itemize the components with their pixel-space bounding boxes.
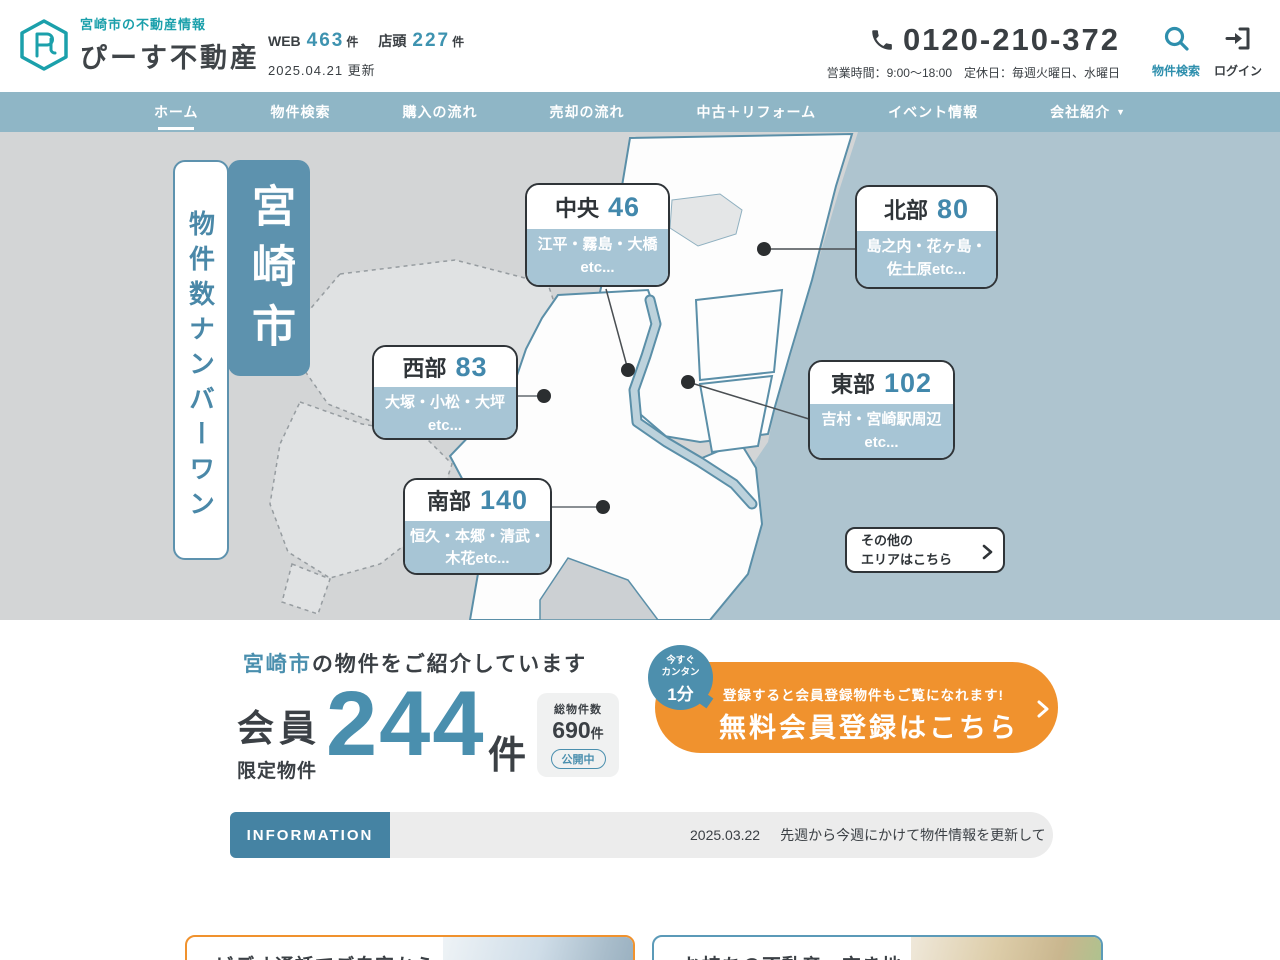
login-button[interactable]: ログイン [1206, 25, 1270, 79]
map-dot-west [537, 389, 551, 403]
business-hours: 営業時間：9:00〜18:00 定休日：毎週火曜日、水曜日 [827, 64, 1120, 81]
members-count-unit: 件 [488, 724, 526, 779]
web-count-label: WEB [268, 33, 301, 49]
information-label: INFORMATION [230, 812, 390, 858]
news-date: 2025.03.22 [690, 827, 760, 843]
brand-name: ぴーす不動産 [80, 36, 260, 75]
area-card-tobu[interactable]: 東部102 吉村・宮崎駅周辺etc... [808, 360, 955, 460]
nav-item-company[interactable]: 会社紹介▼ [1050, 92, 1126, 132]
property-search-button[interactable]: 物件検索 [1144, 25, 1208, 79]
map-dot-east [681, 375, 695, 389]
area-card-nanbu[interactable]: 南部140 恒久・本郷・清武・木花etc... [403, 478, 552, 575]
store-count-value: 227 [412, 30, 450, 52]
video-consultation-card[interactable]: ビデオ通話でご自宅から相談 [185, 935, 635, 960]
map-dot-central [621, 363, 635, 377]
nav-item-buying-flow[interactable]: 購入の流れ [403, 92, 478, 132]
total-listings-box: 総物件数 690件 公開中 [537, 693, 619, 777]
nav-item-used-reform[interactable]: 中古＋リフォーム [697, 92, 817, 132]
phone-number[interactable]: 0120-210-372 [903, 22, 1120, 58]
property-sell-card[interactable]: お持ちの不動産、空き地を [652, 935, 1103, 960]
area-card-chuo[interactable]: 中央46 江平・霧島・大橋etc... [525, 183, 670, 287]
members-only-label: 会員 限定物件 [237, 698, 321, 783]
contact-block: 0120-210-372 営業時間：9:00〜18:00 定休日：毎週火曜日、水… [827, 22, 1120, 81]
one-minute-badge: 今すぐ カンタン 1分 [648, 645, 713, 710]
vertical-banner-main: 宮崎市 [228, 160, 310, 376]
chevron-right-icon [981, 544, 993, 560]
brand-logo-icon [18, 19, 70, 71]
cta-main-text: 無料会員登録はこちら [719, 706, 1019, 745]
main-nav: ホーム 物件検索 購入の流れ 売却の流れ 中古＋リフォーム イベント情報 会社紹… [0, 92, 1280, 132]
header: 宮崎市の不動産情報 ぴーす不動産 WEB 463 件 店頭 227 件 2025… [0, 0, 1280, 92]
map-dot-south [596, 500, 610, 514]
map-area-east-upper [696, 290, 782, 380]
other-areas-button[interactable]: その他のエリアはこちら [845, 527, 1005, 573]
dropdown-caret-icon: ▼ [1116, 107, 1126, 117]
members-section: 宮崎市の物件をご紹介しています 会員 限定物件 244 件 総物件数 690件 … [0, 620, 1280, 812]
information-bar: INFORMATION 2025.03.22 先週から今週にかけて物件情報を更新… [0, 812, 1280, 858]
nav-item-event-info[interactable]: イベント情報 [888, 92, 978, 132]
area-card-seibu[interactable]: 西部83 大塚・小松・大坪etc... [372, 345, 518, 440]
information-body: 2025.03.22 先週から今週にかけて物件情報を更新して [390, 812, 1053, 858]
vertical-banner-sub: 物件数ナンバーワン [173, 160, 229, 560]
hero-map-section: 物件数ナンバーワン 宮崎市 中央46 江平・霧島・大橋etc... 北部80 島… [0, 132, 1280, 620]
search-icon [1163, 25, 1190, 52]
news-headline[interactable]: 先週から今週にかけて物件情報を更新して [780, 825, 1046, 845]
nav-item-home[interactable]: ホーム [154, 92, 199, 132]
status-badge: 公開中 [551, 749, 606, 769]
updated-date: 2025.04.21 更新 [268, 60, 464, 79]
listing-counts: WEB 463 件 店頭 227 件 2025.04.21 更新 [268, 30, 464, 79]
map-dot-north [757, 242, 771, 256]
page: 宮崎市の不動産情報 ぴーす不動産 WEB 463 件 店頭 227 件 2025… [0, 0, 1280, 960]
nav-item-selling-flow[interactable]: 売却の流れ [550, 92, 625, 132]
brand-logo[interactable]: 宮崎市の不動産情報 ぴーす不動産 [18, 14, 260, 75]
cta-subtext: 登録すると会員登録物件もご覧になれます! [723, 684, 1004, 704]
house-model-photo [911, 937, 1101, 960]
consultation-photo [443, 937, 633, 960]
login-icon [1224, 25, 1252, 52]
nav-item-property-search[interactable]: 物件検索 [271, 92, 331, 132]
chevron-right-icon [1036, 700, 1049, 718]
web-count-value: 463 [307, 30, 345, 52]
free-registration-banner[interactable]: 今すぐ カンタン 1分 登録すると会員登録物件もご覧になれます! 無料会員登録は… [655, 662, 1058, 753]
area-card-hokubu[interactable]: 北部80 島之内・花ヶ島・佐土原etc... [855, 185, 998, 289]
phone-icon [869, 27, 895, 53]
members-count: 244 [326, 678, 486, 770]
store-count-label: 店頭 [378, 31, 406, 51]
brand-tagline: 宮崎市の不動産情報 [80, 14, 260, 33]
